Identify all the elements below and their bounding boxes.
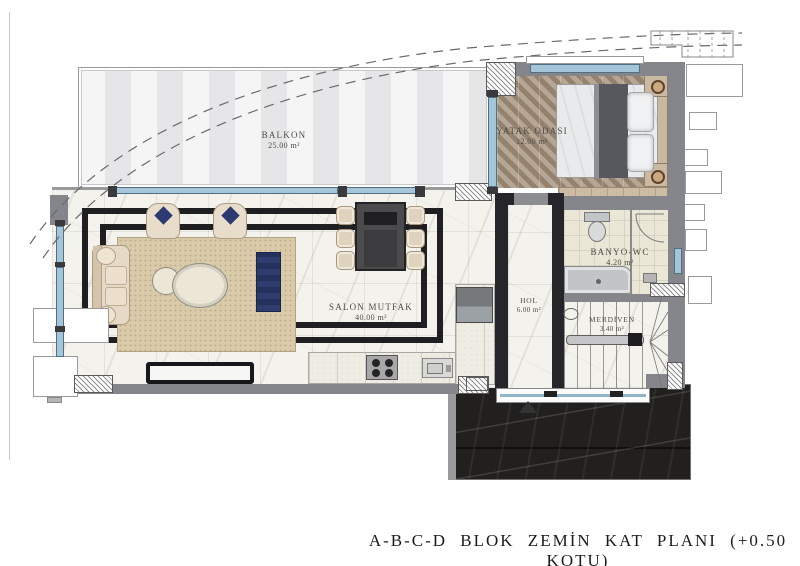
bathroom-window xyxy=(674,248,682,274)
tv-unit xyxy=(256,252,281,312)
lamp-icon xyxy=(651,80,665,94)
neighbor-block-ticks xyxy=(660,31,724,57)
bed-blanket xyxy=(599,84,628,178)
exterior-unit-box xyxy=(689,112,717,130)
coffee-table-large xyxy=(172,263,228,308)
dining-chair xyxy=(406,206,425,225)
label-balkon: BALKON 25.00 m² xyxy=(262,130,307,150)
entry-door-glass xyxy=(500,394,646,397)
washbasin xyxy=(643,273,657,283)
neighbor-block-outline xyxy=(651,31,733,57)
exterior-unit-box xyxy=(33,356,78,397)
sink xyxy=(422,358,453,378)
room-area: 6.00 m² xyxy=(517,306,541,314)
plan-caption: A-B-C-D BLOK ZEMİN KAT PLANI (+0.50 KOTU… xyxy=(360,531,796,566)
room-area: 40.00 m² xyxy=(329,313,413,322)
column-hatched xyxy=(667,362,683,390)
column-hatched xyxy=(74,375,113,393)
room-name: MERDİVEN xyxy=(589,315,635,324)
toilet-bowl xyxy=(588,221,606,242)
bedroom-door-opening xyxy=(514,193,548,205)
column-hatched xyxy=(466,377,488,391)
dining-chair xyxy=(336,206,355,225)
property-boundary-line xyxy=(9,12,10,460)
west-window xyxy=(56,226,64,263)
stove xyxy=(366,355,398,380)
fridge xyxy=(456,287,493,323)
armchair xyxy=(146,203,180,239)
room-area: 12.00 m² xyxy=(496,137,568,146)
exterior-unit-box xyxy=(685,229,707,251)
lamp-icon xyxy=(651,170,665,184)
door-handle-mark xyxy=(610,391,623,397)
exterior-unit-box xyxy=(685,171,722,194)
balcony-sliding-door xyxy=(116,187,338,194)
window-frame-cap xyxy=(55,326,65,332)
shower-tray xyxy=(564,266,632,294)
exterior-unit-box xyxy=(33,308,109,343)
dining-chair xyxy=(336,229,355,248)
door-mullion xyxy=(338,186,347,197)
window-frame-cap xyxy=(55,262,65,267)
room-area: 4.20 m² xyxy=(590,258,649,267)
hall-west-wall xyxy=(495,193,508,396)
window-frame-cap xyxy=(487,90,498,97)
navy-pillow xyxy=(154,206,172,224)
door-frame-cap xyxy=(415,186,425,197)
dining-table xyxy=(355,202,406,271)
room-name: YATAK ODASI xyxy=(496,126,568,136)
label-salon-mutfak: SALON MUTFAK 40.00 m² xyxy=(329,302,413,322)
exterior-unit-box xyxy=(683,149,708,166)
balcony-sliding-door xyxy=(346,187,416,194)
bedroom-east-wall xyxy=(668,62,685,198)
label-merdiven: MERDİVEN 3.40 m² xyxy=(589,315,635,333)
armchair xyxy=(213,203,247,239)
room-area: 3.40 m² xyxy=(589,325,635,333)
floor-plan-canvas: BALKON 25.00 m² YATAK ODASI 12.00 m² BAN… xyxy=(0,0,800,566)
door-handle-mark xyxy=(544,391,557,397)
label-banyo-wc: BANYO-WC 4.20 m² xyxy=(590,247,649,267)
room-name: SALON MUTFAK xyxy=(329,302,413,312)
room-area: 25.00 m² xyxy=(262,141,307,150)
pillow xyxy=(627,92,654,132)
exterior-unit-box xyxy=(686,64,743,97)
window-frame-cap xyxy=(55,220,65,226)
label-yatak-odasi: YATAK ODASI 12.00 m² xyxy=(496,126,568,146)
terrace-west-edge xyxy=(448,386,456,480)
dining-chair xyxy=(406,251,425,270)
bedroom-window-sill xyxy=(526,56,644,64)
navy-pillow xyxy=(221,206,239,224)
exterior-unit-tab xyxy=(47,397,62,403)
exterior-unit-box xyxy=(683,204,705,221)
label-hol: HOL 6.00 m² xyxy=(517,296,541,314)
exterior-unit-box xyxy=(688,276,712,304)
shower-drain xyxy=(596,279,601,284)
window-seat-console xyxy=(146,362,254,384)
west-window xyxy=(56,267,64,327)
column-hatched xyxy=(650,283,685,297)
bathroom-north-wall xyxy=(552,196,685,210)
balcony-floor xyxy=(78,67,490,188)
window-frame-cap xyxy=(487,187,498,194)
bedroom-north-window xyxy=(530,64,640,73)
room-name: BANYO-WC xyxy=(590,247,649,257)
door-frame-cap xyxy=(108,186,117,197)
room-name: HOL xyxy=(517,296,541,305)
dining-chair xyxy=(406,229,425,248)
room-name: BALKON xyxy=(262,130,307,140)
pillow xyxy=(627,134,654,172)
south-wall xyxy=(75,384,470,394)
hall-east-wall xyxy=(552,193,564,390)
stair-rail-post xyxy=(628,333,642,346)
west-window-small xyxy=(56,331,64,357)
dining-chair xyxy=(336,251,355,270)
